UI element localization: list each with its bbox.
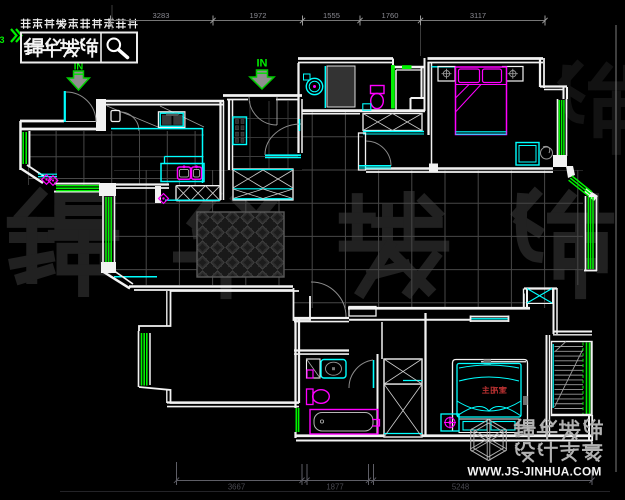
svg-text:1877: 1877 — [326, 483, 343, 492]
svg-text:1972: 1972 — [250, 11, 267, 20]
svg-text:WWW.JS-JINHUA.COM: WWW.JS-JINHUA.COM — [467, 465, 601, 479]
svg-text:IN: IN — [257, 58, 268, 70]
svg-text:3: 3 — [0, 35, 5, 45]
svg-text:3117: 3117 — [470, 11, 486, 20]
svg-text:5248: 5248 — [452, 483, 469, 492]
svg-text:3667: 3667 — [228, 483, 245, 492]
svg-text:1760: 1760 — [382, 11, 399, 20]
svg-text:1555: 1555 — [323, 11, 340, 20]
svg-text:3283: 3283 — [153, 11, 170, 20]
